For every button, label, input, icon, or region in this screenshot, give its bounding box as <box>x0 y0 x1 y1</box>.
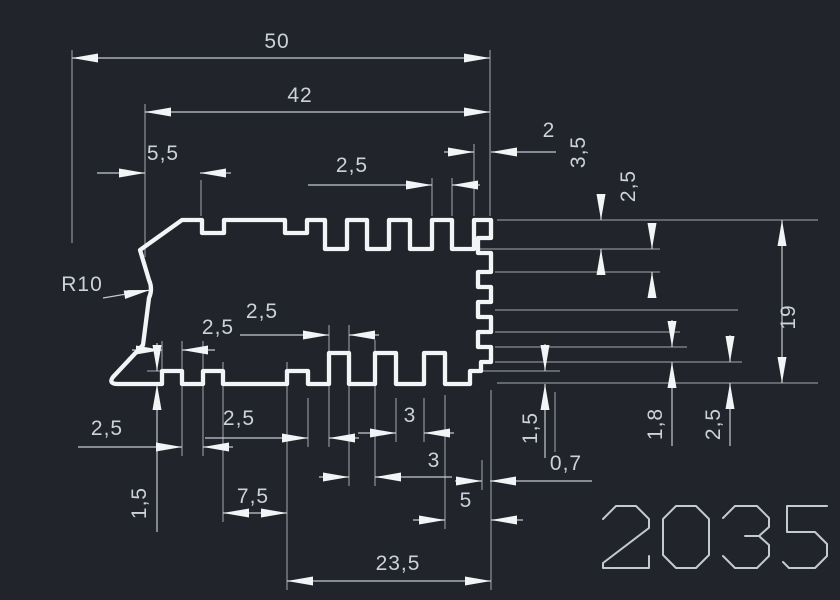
dim-label-23-5: 23,5 <box>376 552 421 576</box>
dim-label-2-5-a: 2,5 <box>202 316 234 340</box>
dim-label-3-b: 3 <box>428 449 441 473</box>
dim-label-7-5: 7,5 <box>237 485 269 509</box>
drawing-canvas <box>0 0 840 600</box>
dim-label-2-5-top: 2,5 <box>336 154 368 178</box>
dim-label-r10: R10 <box>61 273 103 297</box>
dim-label-50: 50 <box>264 30 289 54</box>
dim-label-19: 19 <box>777 304 801 329</box>
dim-label-2-5-right-upper: 2,5 <box>617 170 641 202</box>
dim-label-3-a: 3 <box>404 404 417 428</box>
dim-label-2-5-right-lower: 2,5 <box>702 408 726 440</box>
dim-label-2-5-left: 2,5 <box>91 417 123 441</box>
cad-drawing-viewport[interactable]: 50 42 5,5 2,5 2 3,5 2,5 19 R10 2,5 2,5 2… <box>0 0 840 600</box>
extension-lines <box>72 50 818 590</box>
dim-label-2-5-mid: 2,5 <box>223 407 255 431</box>
dimension-lines <box>72 58 782 581</box>
dim-label-1-8: 1,8 <box>644 408 668 440</box>
dim-label-3-5: 3,5 <box>567 136 591 168</box>
part-number <box>603 506 827 568</box>
dim-label-2-5-b: 2,5 <box>246 300 278 324</box>
dim-label-5: 5 <box>460 489 473 513</box>
dim-label-1-5-left: 1,5 <box>128 487 152 519</box>
dim-label-5-5: 5,5 <box>147 142 179 166</box>
dim-label-42: 42 <box>287 84 312 108</box>
profile-outline <box>111 220 491 384</box>
dim-label-1-5-right: 1,5 <box>519 412 543 444</box>
dim-label-2: 2 <box>543 119 556 143</box>
dim-label-0-7: 0,7 <box>550 452 582 476</box>
